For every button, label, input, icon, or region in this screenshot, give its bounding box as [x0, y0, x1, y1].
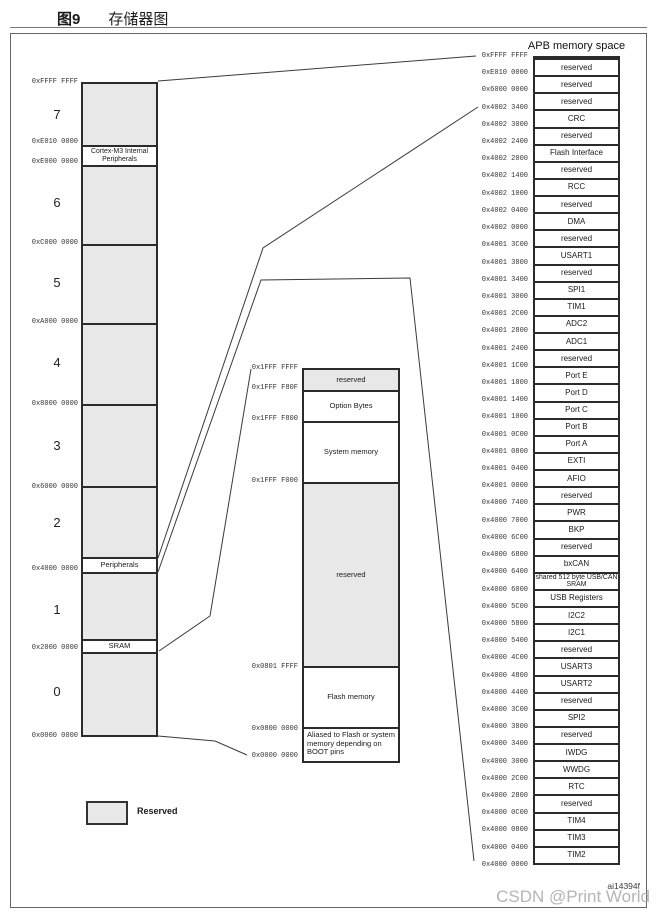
apb-row-label: ADC2	[566, 320, 587, 328]
apb-row: reserved	[535, 538, 618, 555]
apb-row-label: reserved	[561, 235, 592, 243]
apb-row-label: reserved	[561, 731, 592, 739]
apb-row: TIM2	[535, 846, 618, 863]
apb-address-label: 0x6000 0000	[448, 86, 528, 94]
apb-row: RTC	[535, 777, 618, 794]
apb-row: reserved	[535, 161, 618, 178]
legend-reserved-label: Reserved	[137, 806, 178, 816]
apb-row-label: reserved	[561, 800, 592, 808]
apb-row: I2C1	[535, 623, 618, 640]
sram-block: SRAM	[83, 639, 156, 652]
apb-row: reserved	[535, 229, 618, 246]
apb-address-label: 0x4000 0400	[448, 844, 528, 852]
apb-address-label: 0x4000 0C00	[448, 809, 528, 817]
system-memory-block: System memory	[304, 421, 398, 482]
region-number: 3	[40, 438, 74, 453]
apb-address-label: 0x4000 6400	[448, 568, 528, 576]
apb-row: ADC1	[535, 332, 618, 349]
apb-row-label: CRC	[568, 115, 585, 123]
apb-address-label: 0x4002 1400	[448, 172, 528, 180]
apb-row: RCC	[535, 178, 618, 195]
region-6-block	[83, 165, 156, 245]
apb-row-label: reserved	[561, 355, 592, 363]
apb-row: reserved	[535, 726, 618, 743]
region-number: 1	[40, 602, 74, 617]
region-4-block	[83, 323, 156, 404]
address-label: 0x0000 0000	[230, 752, 298, 760]
apb-address-label: 0x4001 2C00	[448, 310, 528, 318]
apb-row: SPI2	[535, 709, 618, 726]
apb-address-label: 0x4000 0000	[448, 861, 528, 869]
apb-row: PWR	[535, 503, 618, 520]
apb-address-label: 0x4000 3800	[448, 723, 528, 731]
apb-row: reserved	[535, 640, 618, 657]
apb-row: IWDG	[535, 743, 618, 760]
apb-address-label: 0x4000 3C00	[448, 706, 528, 714]
apb-address-label: 0x4001 0400	[448, 465, 528, 473]
apb-address-label: 0x4000 7000	[448, 517, 528, 525]
apb-row: Flash Interface	[535, 144, 618, 161]
apb-row-label: RTC	[568, 783, 584, 791]
apb-address-label: 0x4002 2000	[448, 155, 528, 163]
apb-row: WWDG	[535, 760, 618, 777]
apb-row-label: BKP	[568, 526, 584, 534]
apb-row-label: EXTI	[568, 457, 586, 465]
apb-row-label: Port C	[565, 406, 588, 414]
apb-row: BKP	[535, 520, 618, 537]
region-number: 5	[40, 275, 74, 290]
apb-address-label: 0x4001 1800	[448, 379, 528, 387]
flash-address-column: 0x1FFF FFFF 0x1FFF F80F 0x1FFF F800 0x1F…	[230, 0, 298, 914]
flash-reserved-top-block: reserved	[304, 370, 398, 390]
region-number: 7	[40, 107, 74, 122]
apb-address-label: 0x4001 3C00	[448, 241, 528, 249]
apb-address-label: 0x4002 1000	[448, 190, 528, 198]
apb-row-label: I2C2	[568, 612, 585, 620]
apb-row-label: TIM3	[567, 834, 585, 842]
apb-row: shared 512 byte USB/CAN SRAM	[535, 572, 618, 589]
apb-address-label: 0xFFFF FFFF	[448, 52, 528, 60]
apb-address-label: 0x4000 4C00	[448, 654, 528, 662]
apb-row: Port E	[535, 366, 618, 383]
memory-map-figure: 图9存储器图 0xFFFF FFFF 0xE010 0000 0xE000 00…	[0, 0, 658, 914]
apb-row-label: Port E	[565, 372, 587, 380]
address-label: 0x0800 0000	[230, 725, 298, 733]
address-label: 0x0801 FFFF	[230, 663, 298, 671]
apb-row-label: reserved	[561, 201, 592, 209]
apb-row: DMA	[535, 212, 618, 229]
apb-row: CRC	[535, 109, 618, 126]
apb-row-label: bxCAN	[564, 560, 589, 568]
address-label: 0x1FFF F800	[230, 415, 298, 423]
apb-row-label: SPI1	[568, 286, 585, 294]
apb-address-label: 0x4000 6C00	[448, 534, 528, 542]
apb-row: USART1	[535, 246, 618, 263]
apb-row: Port A	[535, 435, 618, 452]
apb-address-label: 0x4002 0000	[448, 224, 528, 232]
flash-memory-block: Flash memory	[304, 666, 398, 727]
apb-row-label: reserved	[561, 492, 592, 500]
apb-row-label: reserved	[561, 543, 592, 551]
apb-address-label: 0x4000 6000	[448, 586, 528, 594]
option-bytes-block: Option Bytes	[304, 390, 398, 421]
apb-address-label: 0x4000 4400	[448, 689, 528, 697]
region-5-block	[83, 244, 156, 323]
legend-reserved-swatch	[86, 801, 128, 825]
apb-row: USART2	[535, 675, 618, 692]
address-label: 0x1FFF FFFF	[230, 364, 298, 372]
apb-row-label: AFIO	[567, 475, 586, 483]
apb-row-label: USART2	[561, 680, 592, 688]
apb-address-label: 0x4000 6800	[448, 551, 528, 559]
apb-address-label: 0x4000 5800	[448, 620, 528, 628]
boot-alias-block: Aliased to Flash or system memory depend…	[304, 727, 398, 761]
apb-row-label: RCC	[568, 183, 585, 191]
apb-address-label: 0x4001 3800	[448, 259, 528, 267]
flash-detail-column: reserved Option Bytes System memory rese…	[302, 368, 400, 763]
region-number: 2	[40, 515, 74, 530]
apb-row: reserved	[535, 58, 618, 75]
apb-address-label: 0x4001 0800	[448, 448, 528, 456]
apb-row-label: Port D	[565, 389, 588, 397]
cortex-m3-peripherals-block: Cortex-M3 Internal Peripherals	[83, 145, 156, 165]
apb-row-label: USB Registers	[550, 594, 602, 602]
region-number: 6	[40, 195, 74, 210]
connector-top-to-apb	[158, 56, 476, 81]
apb-row: TIM3	[535, 829, 618, 846]
apb-row-label: USART3	[561, 663, 592, 671]
apb-row-label: reserved	[561, 646, 592, 654]
apb-row: EXTI	[535, 452, 618, 469]
region-0-block	[83, 652, 156, 735]
apb-address-label: 0x4001 0000	[448, 482, 528, 490]
apb-row: reserved	[535, 195, 618, 212]
apb-address-label: 0x4001 3400	[448, 276, 528, 284]
apb-row: USART3	[535, 657, 618, 674]
apb-address-label: 0x4001 3000	[448, 293, 528, 301]
apb-address-label: 0x4000 3000	[448, 758, 528, 766]
apb-row-label: ADC1	[566, 338, 587, 346]
apb-row: reserved	[535, 486, 618, 503]
address-label: 0x1FFF F000	[230, 477, 298, 485]
region-2-block	[83, 486, 156, 557]
flash-reserved-block: reserved	[304, 482, 398, 666]
apb-row-label: TIM1	[567, 303, 585, 311]
apb-row: USB Registers	[535, 589, 618, 606]
region-1-block	[83, 572, 156, 639]
apb-row-label: TIM2	[567, 851, 585, 859]
apb-row-label: PWR	[567, 509, 586, 517]
apb-address-label: 0x4002 2400	[448, 138, 528, 146]
apb-address-label: 0x4000 5C00	[448, 603, 528, 611]
apb-address-label: 0x4001 2400	[448, 345, 528, 353]
apb-row: reserved	[535, 92, 618, 109]
apb-address-column: 0xFFFF FFFF0xE010 00000x6000 00000x4002 …	[448, 0, 528, 914]
apb-row-label: I2C1	[568, 629, 585, 637]
apb-address-label: 0x4001 1C00	[448, 362, 528, 370]
apb-address-label: 0x4000 0800	[448, 826, 528, 834]
apb-row-label: reserved	[561, 132, 592, 140]
apb-row-label: IWDG	[566, 749, 588, 757]
main-memory-column: Cortex-M3 Internal Peripherals Periphera…	[81, 82, 158, 737]
apb-address-label: 0x4000 5400	[448, 637, 528, 645]
apb-row-label: Port B	[565, 423, 587, 431]
apb-address-label: 0x4001 0C00	[448, 431, 528, 439]
apb-row: ADC2	[535, 315, 618, 332]
apb-row-label: USART1	[561, 252, 592, 260]
apb-row-label: DMA	[568, 218, 586, 226]
apb-address-label: 0x4000 7400	[448, 499, 528, 507]
region-number-column: 7 6 5 4 3 2 1 0	[40, 0, 74, 914]
apb-address-label: 0x4001 1400	[448, 396, 528, 404]
apb-row-label: Port A	[566, 440, 588, 448]
apb-row: reserved	[535, 75, 618, 92]
region-7-block	[83, 84, 156, 145]
region-number: 4	[40, 355, 74, 370]
apb-row-label: SPI2	[568, 714, 585, 722]
apb-row-label: reserved	[561, 64, 592, 72]
apb-row: Port C	[535, 401, 618, 418]
apb-row: reserved	[535, 127, 618, 144]
apb-row-label: reserved	[561, 98, 592, 106]
apb-row: SPI1	[535, 281, 618, 298]
region-number: 0	[40, 684, 74, 699]
apb-address-label: 0x4002 0400	[448, 207, 528, 215]
apb-address-label: 0x4001 1000	[448, 413, 528, 421]
apb-row: reserved	[535, 349, 618, 366]
apb-row-label: reserved	[561, 697, 592, 705]
apb-row: reserved	[535, 264, 618, 281]
apb-row-label: reserved	[561, 166, 592, 174]
apb-row: Port D	[535, 383, 618, 400]
csdn-watermark: CSDN @Print World	[496, 887, 650, 907]
apb-address-label: 0x4001 2800	[448, 327, 528, 335]
apb-address-label: 0x4002 3000	[448, 121, 528, 129]
apb-row: TIM1	[535, 298, 618, 315]
apb-row: bxCAN	[535, 555, 618, 572]
apb-address-label: 0x4000 3400	[448, 740, 528, 748]
apb-address-label: 0xE010 0000	[448, 69, 528, 77]
apb-row: AFIO	[535, 469, 618, 486]
apb-address-label: 0x4000 4800	[448, 672, 528, 680]
apb-row-label: TIM4	[567, 817, 585, 825]
apb-row-label: Flash Interface	[550, 149, 603, 157]
apb-row-label: WWDG	[563, 766, 590, 774]
address-label: 0x1FFF F80F	[230, 384, 298, 392]
apb-row-label: reserved	[561, 81, 592, 89]
apb-row: reserved	[535, 692, 618, 709]
apb-address-label: 0x4000 2C00	[448, 775, 528, 783]
peripherals-block: Peripherals	[83, 557, 156, 572]
apb-row: TIM4	[535, 812, 618, 829]
apb-address-label: 0x4000 2800	[448, 792, 528, 800]
apb-row-label: reserved	[561, 269, 592, 277]
apb-address-label: 0x4002 3400	[448, 104, 528, 112]
apb-row: I2C2	[535, 606, 618, 623]
region-3-block	[83, 404, 156, 486]
apb-row: reserved	[535, 794, 618, 811]
apb-row-label: shared 512 byte USB/CAN SRAM	[535, 574, 618, 588]
apb-memory-column: reserved reserved reserved CRC reserved …	[533, 56, 620, 865]
apb-row: Port B	[535, 418, 618, 435]
